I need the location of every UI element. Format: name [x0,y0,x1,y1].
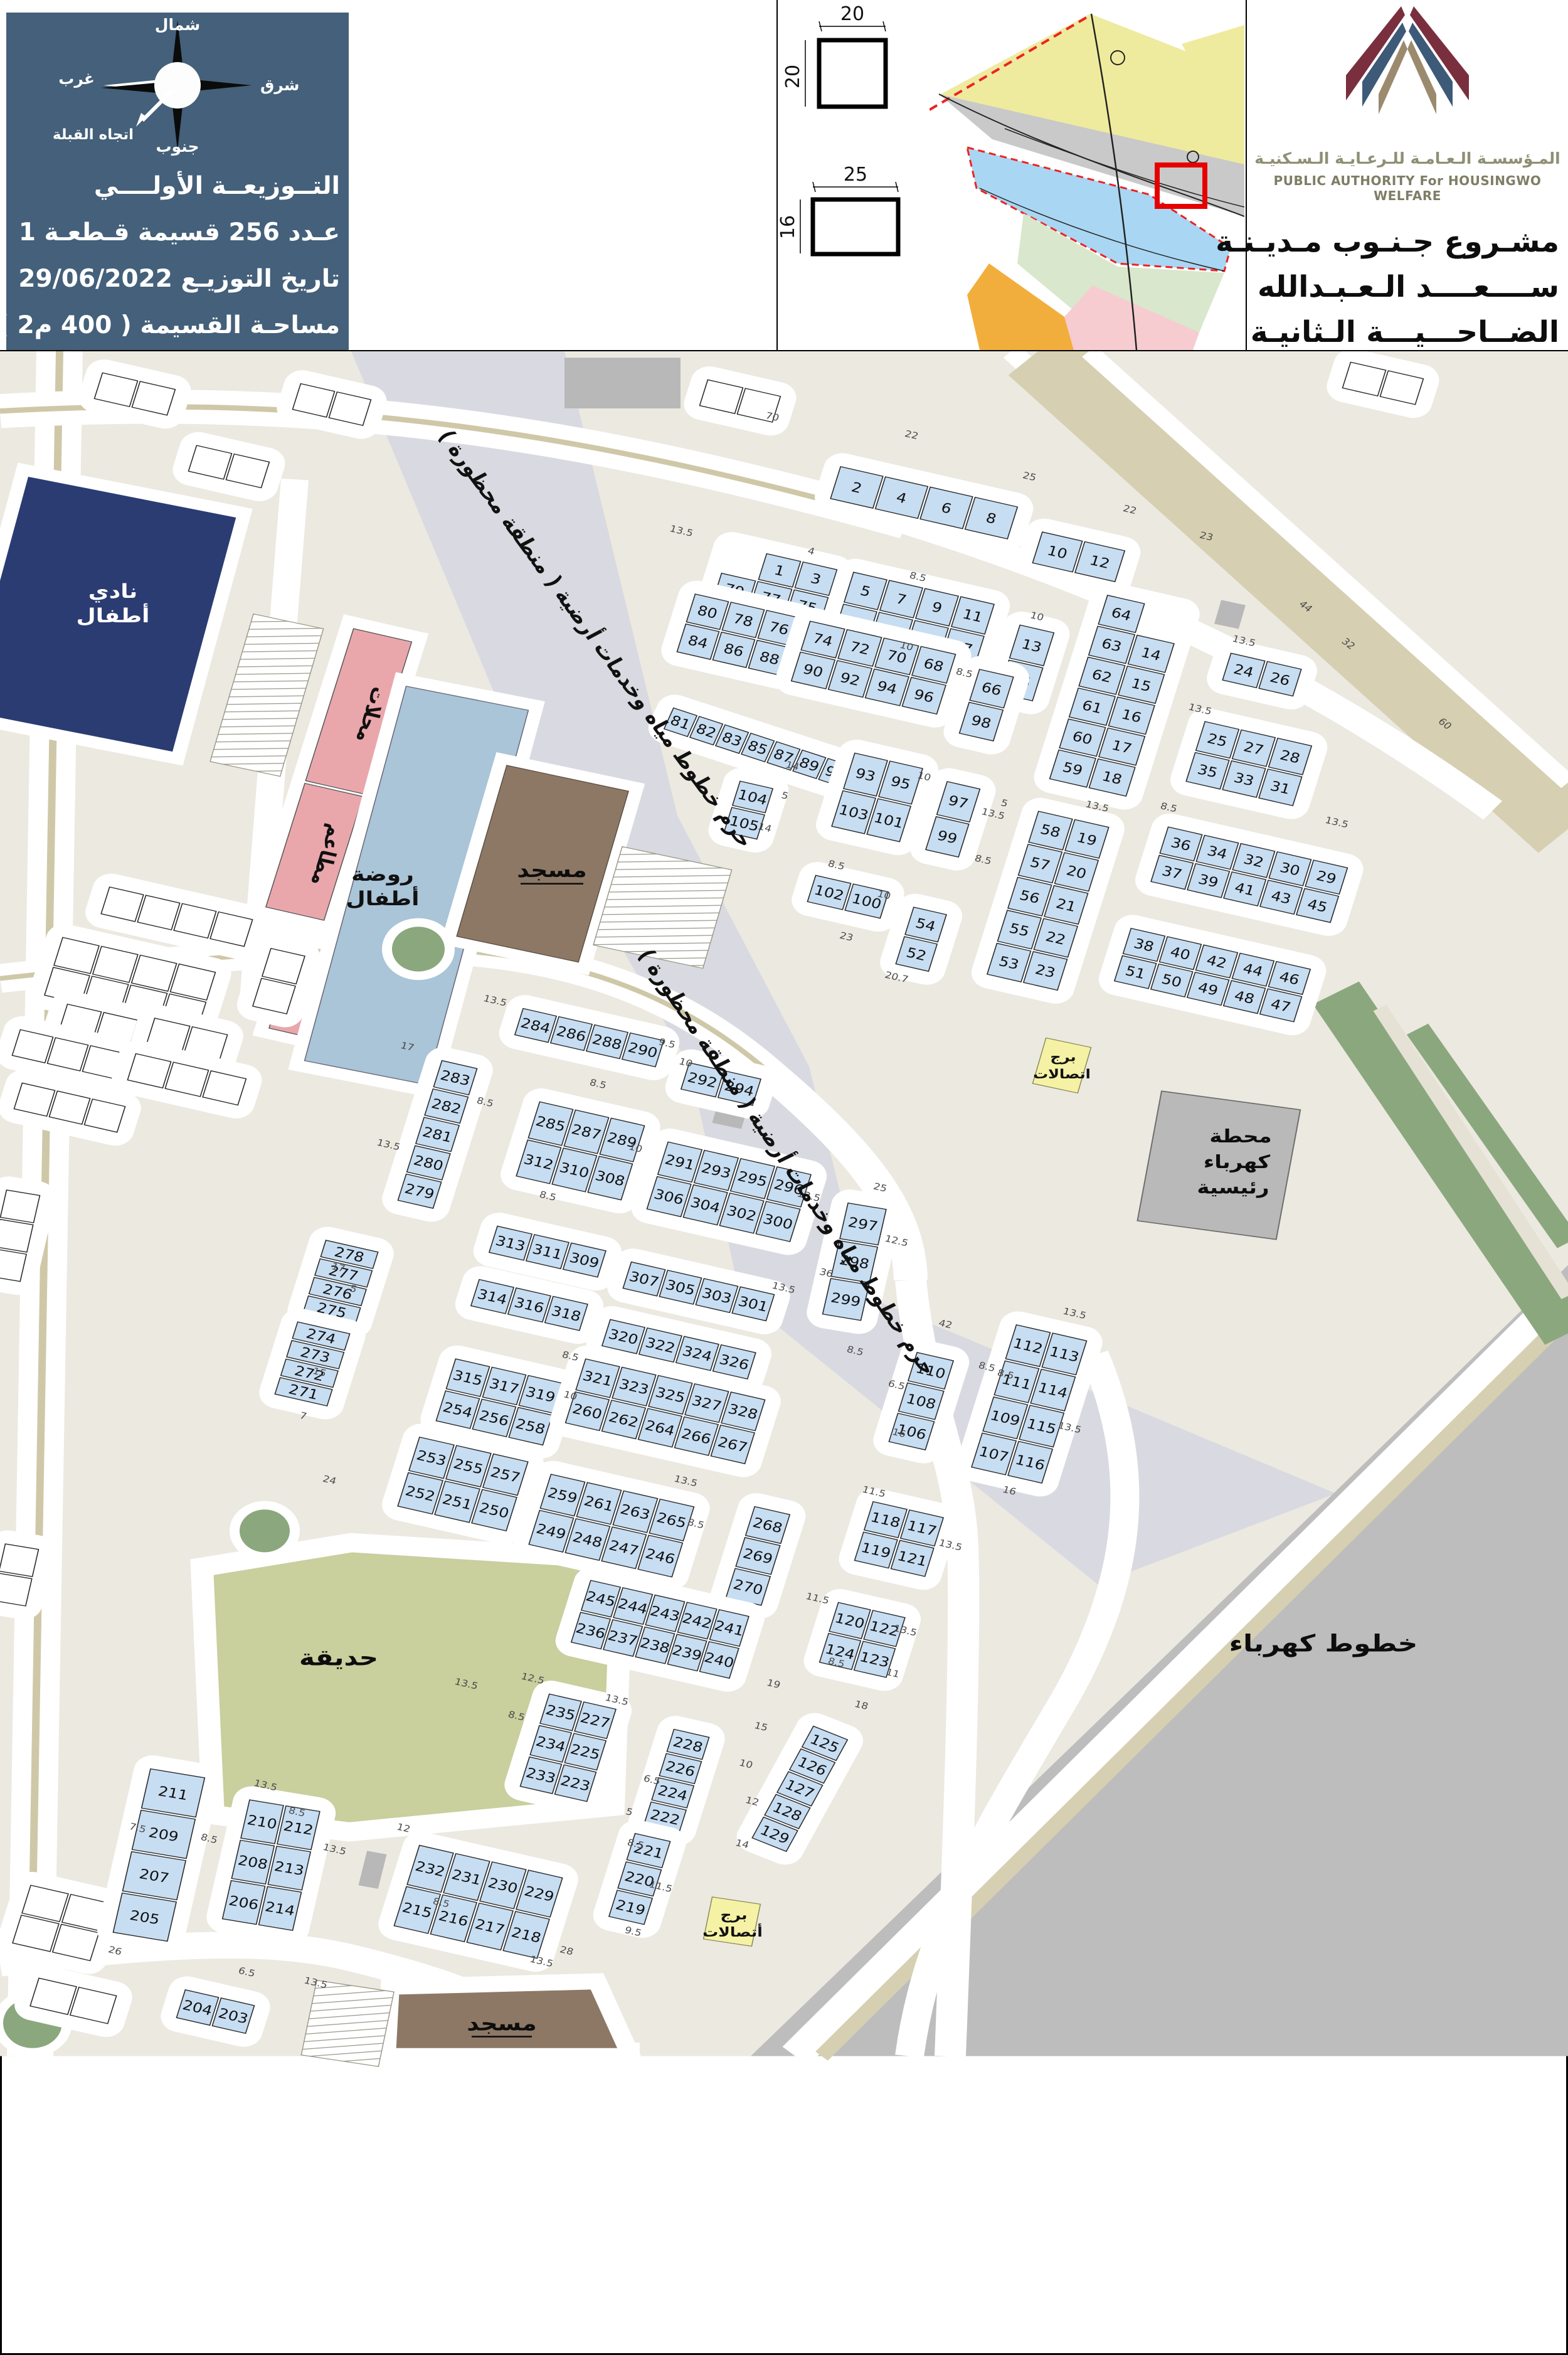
qibla-label: اتجاه القبلة [53,127,134,143]
info-line-4: مساحـة القسيمة ( 400 م2 ) [15,302,340,349]
mosque-label-underline [472,2036,532,2038]
kids-club-label-1: نادي [88,580,137,603]
kids-club-label-2: أطفال [77,603,150,627]
power-station-label-2: كهرباء [1204,1152,1271,1172]
parking-hatched [301,1980,394,2066]
authority-logo [1247,0,1568,146]
authority-panel: المـؤسسـة الـعـامـة للـرعـايـة الـسـكنيـ… [1246,0,1568,350]
compass-east-label: شرق [260,76,300,95]
sheet-header: شمال جنوب شرق غرب اتجاه القبلة التــوزيع… [0,0,1568,351]
info-line-2: عـدد 256 قسيمة قـطعـة 1 [15,210,340,256]
rect-width-label: 25 [844,164,867,186]
mosque-south-label: مسجد [467,2012,536,2036]
vacant-plot [0,1573,32,1606]
compass: شمال جنوب شرق غرب اتجاه القبلة [6,13,349,158]
location-overview-map [930,0,1244,350]
compass-west-label: غرب [58,70,95,88]
square-height-label: 20 [782,65,804,88]
kindergarten-label-1: روضة [351,863,414,886]
project-title-line1: مشـروع جـنـوب مـديـنـة [1252,220,1559,265]
plot-type-rect: 25 16 [778,164,898,254]
roundabout [387,922,450,975]
rect-height-label: 16 [778,215,799,239]
compass-south-label: جنوب [156,137,199,156]
vacant-plot [0,1220,33,1252]
info-line-3: تاريخ التوزيـع 29/06/2022 [15,256,340,302]
vacant-plot [0,1544,38,1576]
compass-north-label: شمال [155,16,200,34]
project-title-line3: الضــاحـــيـــة الـثانيـة [1252,310,1559,355]
service-building [564,358,681,408]
mosque-label-underline [521,883,583,885]
mosque-north-label: مسجد [517,859,586,883]
project-title-line2: ســــعــــد الـعـبـدالله [1252,265,1559,310]
info-line-1: التــوزيعــة الأولــــي [15,163,340,210]
telecom2-label-1: برج [721,1907,748,1923]
plot-type-square: 20 20 [782,3,886,107]
roundabout [235,1505,295,1556]
distribution-info: التــوزيعــة الأولــــي عـدد 256 قسيمة ق… [15,163,340,349]
project-title: مشـروع جـنـوب مـديـنـة ســــعــــد الـعـ… [1252,220,1559,355]
power-lines-label: خطوط كهرباء [1229,1630,1418,1657]
authority-name-en: PUBLIC AUTHORITY For HOUSINGWO WELFARE [1247,173,1568,203]
power-station-label-1: محطة [1209,1126,1271,1147]
telecom-label-2: اتصالات [1033,1066,1091,1082]
park-label: حديقة [299,1645,378,1671]
power-station-label-3: رئيسية [1197,1177,1269,1198]
info-panel: شمال جنوب شرق غرب اتجاه القبلة التــوزيع… [6,13,349,351]
vacant-plot [1,1190,40,1223]
square-width-label: 20 [840,3,864,25]
site-plan-sheet: { "header": { "compass": {"north":"شمال"… [0,0,1568,2355]
plot-dimension-diagrams: 20 20 25 16 [776,0,931,351]
telecom-tower-south: برج أتصالات [702,1897,763,1947]
authority-name-ar: المـؤسسـة الـعـامـة للـرعـايـة الـسـكنيـ… [1247,149,1568,167]
telecom-label-1: برج [1050,1050,1076,1065]
telecom2-label-2: أتصالات [702,1923,763,1940]
kindergarten-label-2: أطفال [346,886,420,910]
subdivision-map: محلات مطاعم بنك روضة أطفال مسجد مسجد محط… [0,351,1568,2355]
